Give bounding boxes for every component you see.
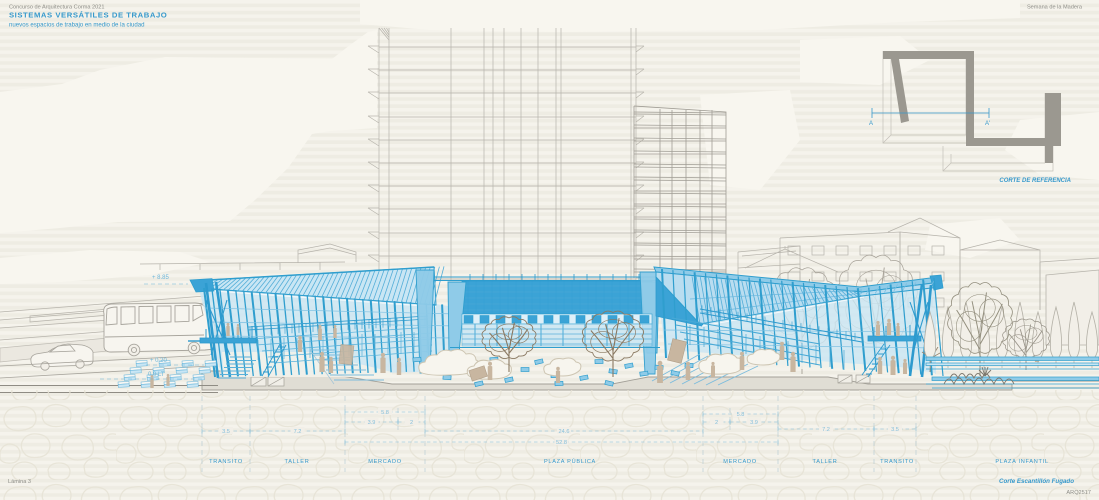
svg-text:3.5: 3.5 [222,429,230,435]
svg-text:7.2: 7.2 [822,427,830,433]
svg-text:PLAZA PÚBLICA: PLAZA PÚBLICA [544,458,596,465]
svg-text:MERCADO: MERCADO [368,459,402,465]
svg-text:24.6: 24.6 [559,429,570,435]
svg-text:0.0 LT: 0.0 LT [148,372,165,378]
svg-text:MERCADO: MERCADO [723,459,757,465]
svg-text:3.9: 3.9 [750,420,758,426]
svg-text:A: A [869,121,873,127]
svg-text:3.9: 3.9 [368,420,376,426]
svg-text:+ 0.20: + 0.20 [150,358,168,364]
svg-text:SISTEMAS VERSÁTILES DE TRABAJO: SISTEMAS VERSÁTILES DE TRABAJO [9,11,167,20]
svg-text:TRANSITO: TRANSITO [880,459,914,465]
svg-text:7.2: 7.2 [294,429,302,435]
svg-text:5.8: 5.8 [737,412,745,418]
svg-text:2: 2 [715,420,718,426]
svg-text:5.8: 5.8 [381,410,389,416]
svg-text:3.5: 3.5 [891,427,899,433]
svg-text:2: 2 [410,420,413,426]
svg-text:Corte Escantillón Fugado: Corte Escantillón Fugado [999,478,1074,485]
svg-text:TRANSITO: TRANSITO [209,459,243,465]
svg-text:nuevos espacios de trabajo en: nuevos espacios de trabajo en medio de l… [9,22,145,29]
svg-text:Lámina 3: Lámina 3 [8,479,31,485]
svg-text:CORTE DE REFERENCIA: CORTE DE REFERENCIA [999,178,1071,184]
svg-text:PLAZA INFANTIL: PLAZA INFANTIL [995,459,1048,465]
svg-text:TALLER: TALLER [813,459,838,465]
svg-text:A': A' [985,121,990,127]
svg-text:52.8: 52.8 [556,440,567,446]
svg-text:TALLER: TALLER [285,459,310,465]
svg-text:ARQ2517: ARQ2517 [1066,490,1091,496]
svg-text:+ 8.85: + 8.85 [152,275,170,281]
svg-text:Semana de la Madera: Semana de la Madera [1027,5,1083,11]
